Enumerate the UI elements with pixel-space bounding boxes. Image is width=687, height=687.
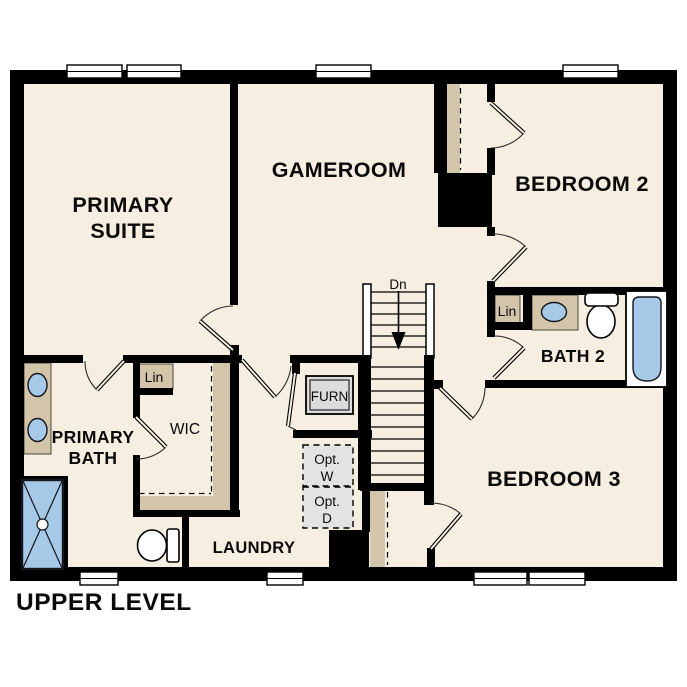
label-primary-bath-line1: PRIMARY (52, 427, 135, 447)
label-bath-2: BATH 2 (541, 346, 605, 366)
window (127, 65, 181, 78)
bedroom2-closet-shelf (447, 84, 460, 173)
primary-toilet (138, 529, 180, 562)
window (80, 572, 118, 585)
label-gameroom: GAMEROOM (272, 158, 407, 182)
label-opt-dryer-line2: D (322, 511, 332, 526)
label-linen-bath2: Lin (498, 303, 517, 319)
label-opt-washer-line2: W (321, 469, 334, 484)
label-furnace: FURN (311, 389, 349, 404)
floor-plan-canvas: PRIMARY SUITE GAMEROOM BEDROOM 2 BATH 2 … (0, 0, 687, 687)
window (267, 572, 303, 585)
primary-sink-1 (28, 374, 47, 397)
window (529, 572, 585, 585)
label-stairs-down: Dn (389, 277, 406, 292)
bedroom3-closet-shelf (370, 490, 385, 567)
primary-sink-2 (28, 419, 47, 442)
window (563, 65, 618, 78)
label-bedroom-3: BEDROOM 3 (487, 467, 621, 491)
window (316, 65, 371, 78)
floor-plan: PRIMARY SUITE GAMEROOM BEDROOM 2 BATH 2 … (0, 0, 687, 687)
label-bedroom-2: BEDROOM 2 (515, 172, 649, 196)
window (67, 65, 122, 78)
label-primary-suite-line2: SUITE (90, 219, 155, 243)
plan-title: UPPER LEVEL (16, 589, 192, 616)
stair-rail-left (363, 284, 371, 358)
primary-shower (22, 480, 63, 569)
label-linen-primary: Lin (145, 369, 164, 385)
label-laundry: LAUNDRY (213, 539, 296, 557)
wic-shelf-horizontal (136, 496, 231, 511)
label-wic: WIC (170, 421, 200, 438)
shower-drain (37, 519, 48, 530)
chase-block (438, 173, 492, 227)
label-primary-suite-line1: PRIMARY (72, 193, 173, 217)
bath2-tub (626, 291, 667, 387)
label-opt-washer-line1: Opt. (314, 452, 340, 467)
label-opt-dryer-line1: Opt. (314, 494, 340, 509)
bath2-toilet (585, 293, 618, 338)
label-primary-bath-line2: BATH (69, 448, 118, 468)
window (474, 572, 527, 585)
wic-shelf-vertical (213, 362, 231, 511)
bath2-sink (542, 303, 567, 322)
stair-rail-right (426, 284, 434, 358)
laundry-chase-block (329, 530, 369, 581)
